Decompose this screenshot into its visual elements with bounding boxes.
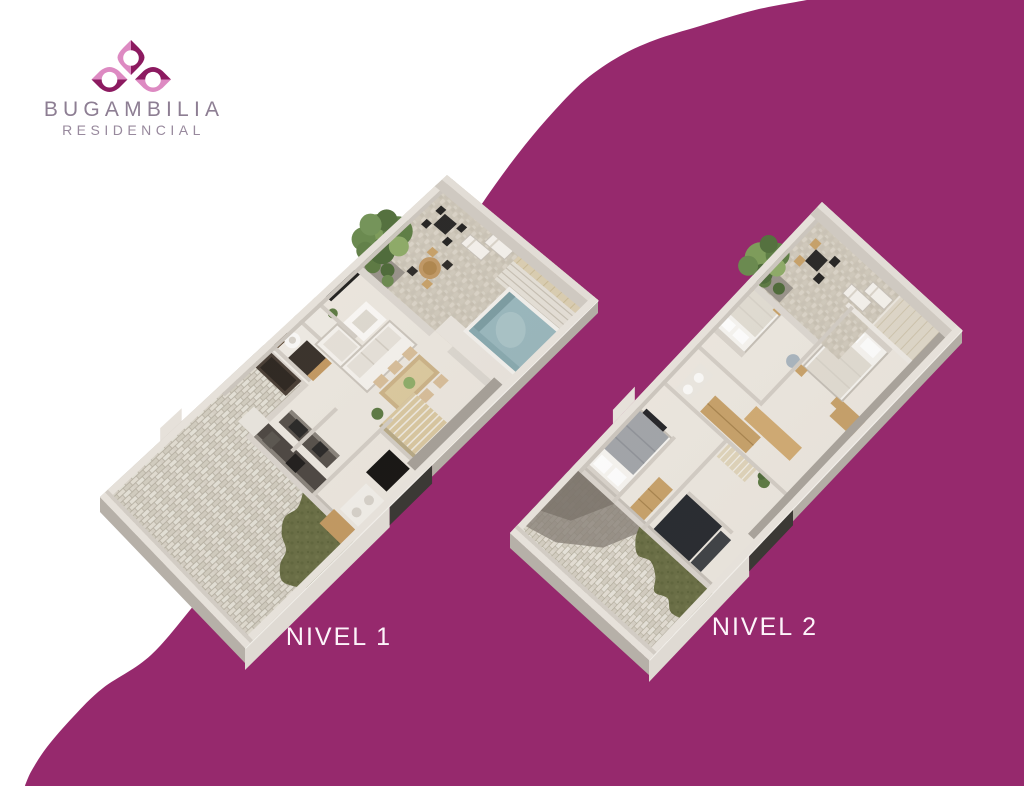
svg-text:BUGAMBILIA: BUGAMBILIA [44,98,224,121]
svg-text:RESIDENCIAL: RESIDENCIAL [62,122,205,138]
svg-text:NIVEL 1: NIVEL 1 [286,623,392,651]
svg-text:NIVEL 2: NIVEL 2 [712,613,818,641]
